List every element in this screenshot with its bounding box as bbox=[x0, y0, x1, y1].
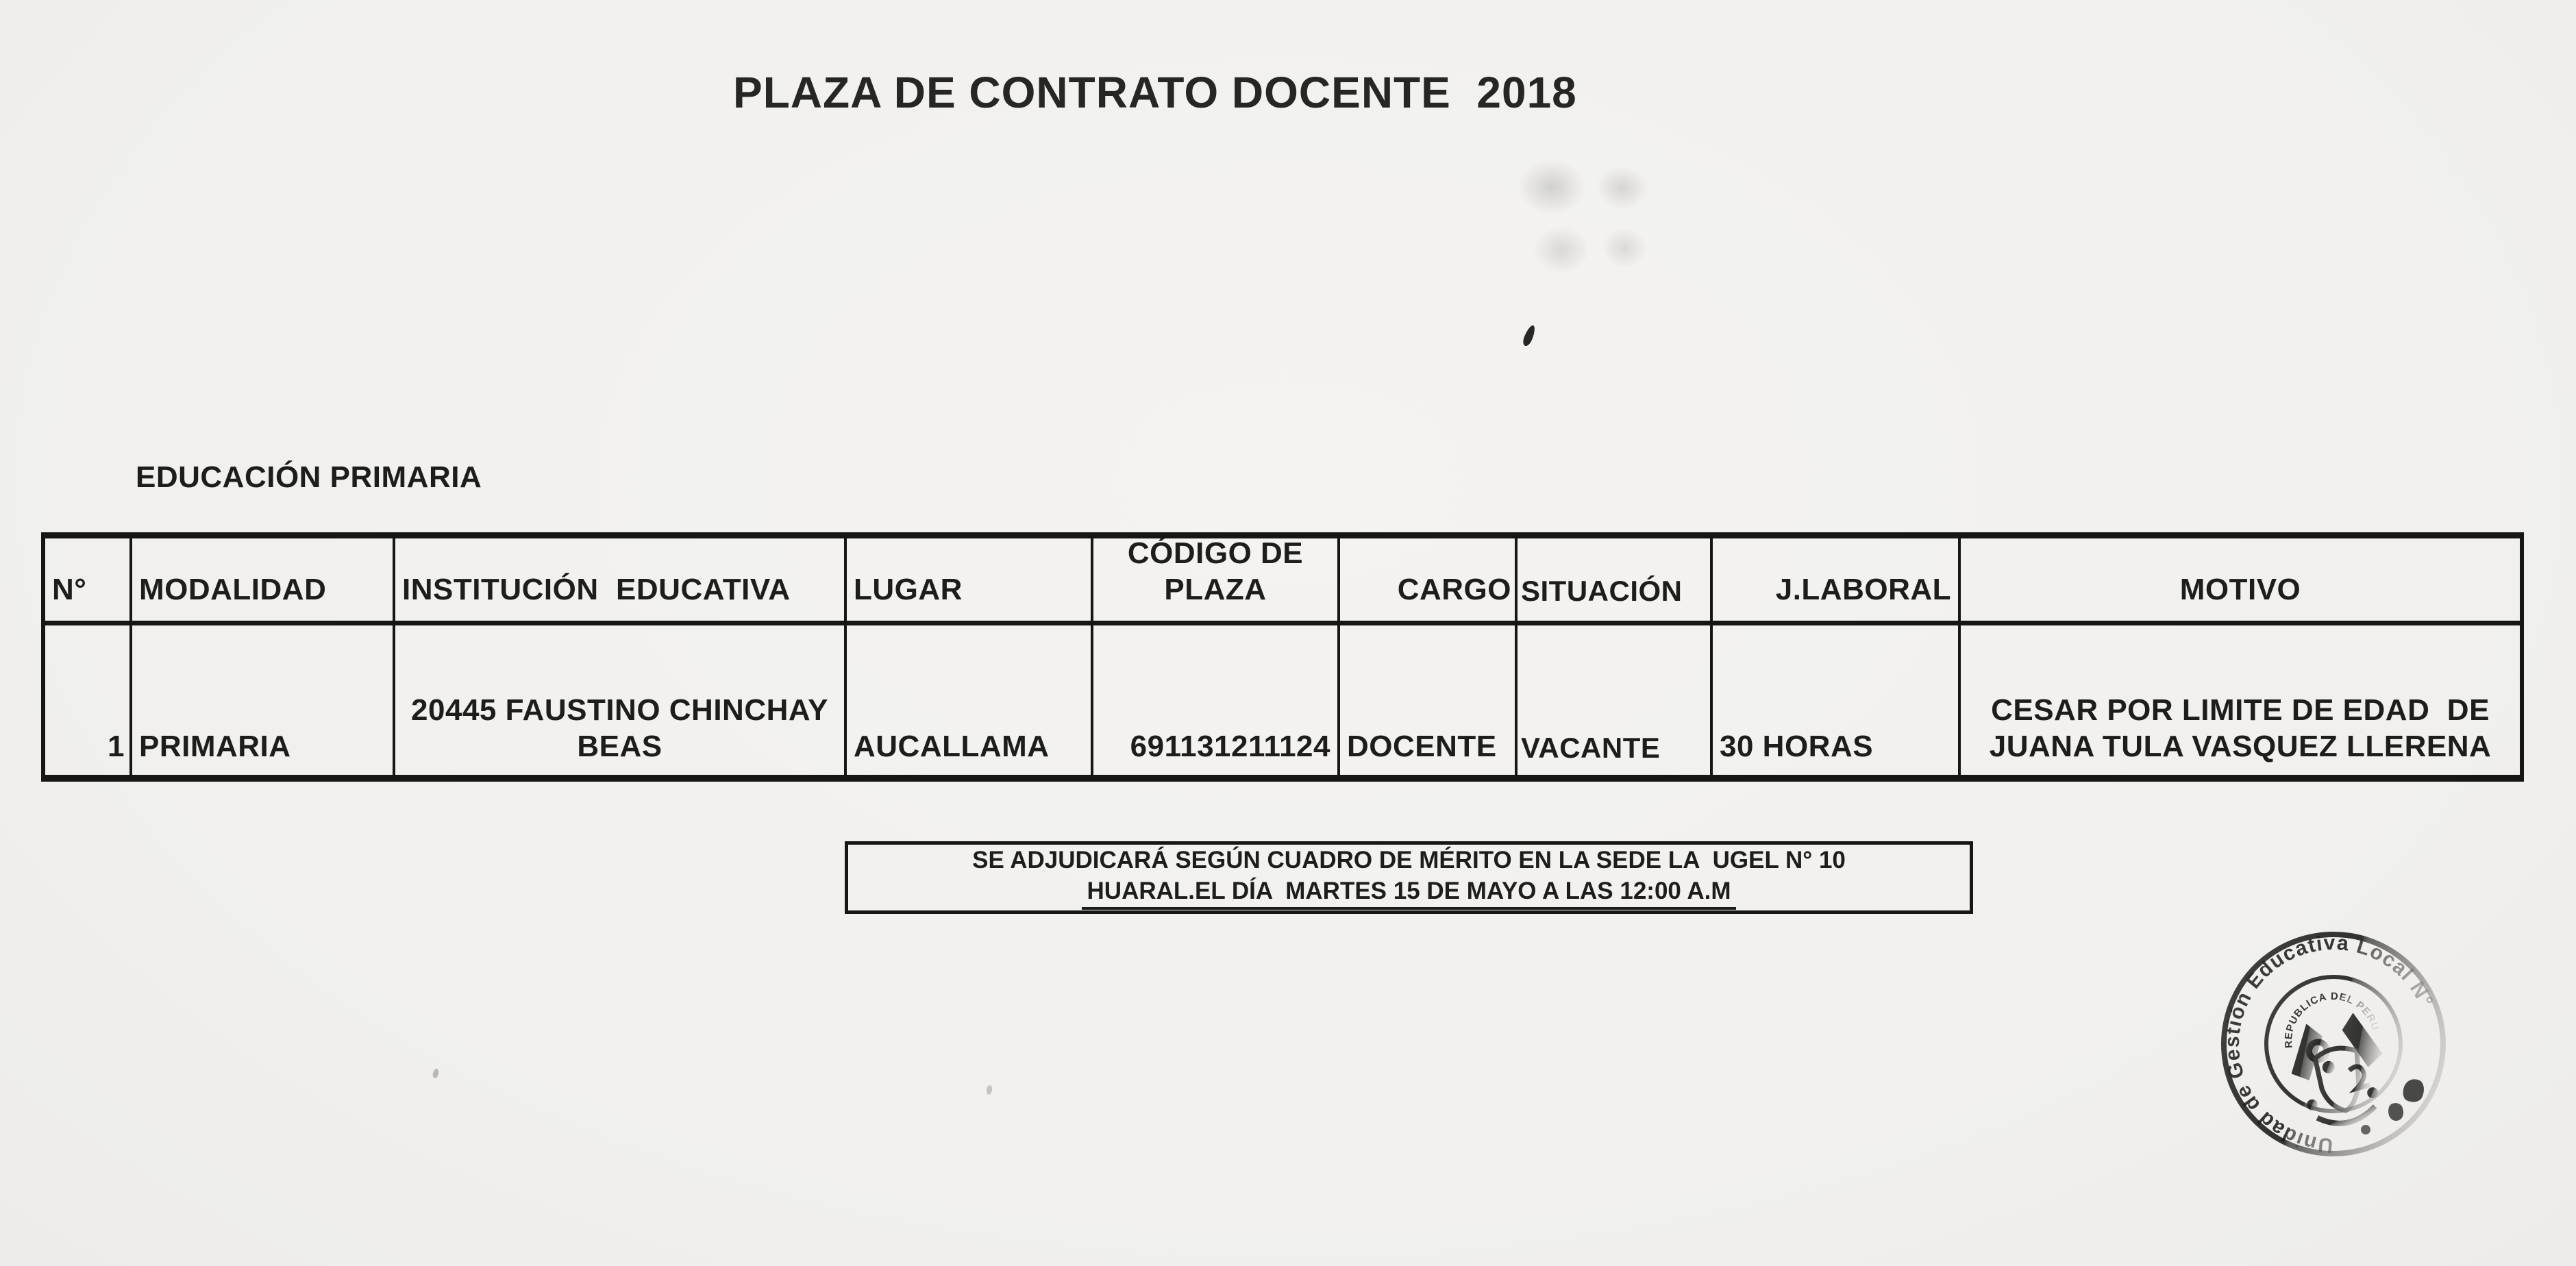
header-codigo-de-plaza: CÓDIGO DE PLAZA bbox=[1093, 538, 1340, 625]
notice-line-1: SE ADJUDICARÁ SEGÚN CUADRO DE MÉRITO EN … bbox=[972, 845, 1846, 876]
row-cell-motivo: CESAR POR LIMITE DE EDAD DE JUANA TULA V… bbox=[1961, 625, 2520, 775]
row-cell-modalidad: PRIMARIA bbox=[132, 625, 395, 775]
row-cell-cargo: DOCENTE bbox=[1340, 625, 1518, 775]
row-cell-codigo: 691131211124 bbox=[1093, 625, 1340, 775]
header-situacion: SITUACIÓN bbox=[1518, 538, 1713, 625]
scan-smudge bbox=[1596, 166, 1648, 210]
header-jlaboral: J.LABORAL bbox=[1713, 538, 1961, 625]
row-cell-jlaboral: 30 HORAS bbox=[1713, 625, 1961, 775]
header-institucion: INSTITUCIÓN EDUCATIVA bbox=[395, 538, 847, 625]
document-title: PLAZA DE CONTRATO DOCENTE 2018 bbox=[733, 67, 1577, 118]
scan-smudge bbox=[1518, 159, 1586, 215]
notice-line-2: HUARAL.EL DÍA MARTES 15 DE MAYO A LAS 12… bbox=[1082, 876, 1737, 910]
scanned-document: PLAZA DE CONTRATO DOCENTE 2018 EDUCACIÓN… bbox=[0, 0, 2576, 1266]
header-motivo: MOTIVO bbox=[1961, 538, 2520, 625]
ugel-stamp: Unidad de Gestión Educativa Local N° REP… bbox=[2159, 869, 2508, 1219]
ugel-stamp-graphic: Unidad de Gestión Educativa Local N° REP… bbox=[2159, 869, 2508, 1219]
stamp-ring-text: Unidad de Gestión Educativa Local N° bbox=[2203, 915, 2462, 1173]
notice-box: SE ADJUDICARÁ SEGÚN CUADRO DE MÉRITO EN … bbox=[845, 841, 1973, 914]
header-lugar: LUGAR bbox=[847, 538, 1093, 625]
header-numero: N° bbox=[45, 538, 132, 625]
row-cell-institucion: 20445 FAUSTINO CHINCHAY BEAS bbox=[395, 625, 847, 775]
row-cell-lugar: AUCALLAMA bbox=[847, 625, 1093, 775]
stamp-rings bbox=[2207, 917, 2461, 1171]
scan-smudge bbox=[1533, 226, 1589, 274]
ink-speck bbox=[1521, 324, 1537, 347]
row-cell-situacion: VACANTE bbox=[1518, 625, 1713, 775]
scan-smudge bbox=[1602, 227, 1647, 269]
scan-speck bbox=[432, 1068, 439, 1079]
ink-blob bbox=[2361, 1125, 2370, 1134]
header-cargo: CARGO bbox=[1340, 538, 1518, 625]
header-modalidad: MODALIDAD bbox=[132, 538, 395, 625]
scan-speck bbox=[986, 1084, 993, 1095]
plaza-table: N° MODALIDAD INSTITUCIÓN EDUCATIVA LUGAR… bbox=[41, 532, 2524, 782]
section-heading: EDUCACIÓN PRIMARIA bbox=[136, 460, 482, 495]
row-cell-numero: 1 bbox=[45, 625, 132, 775]
